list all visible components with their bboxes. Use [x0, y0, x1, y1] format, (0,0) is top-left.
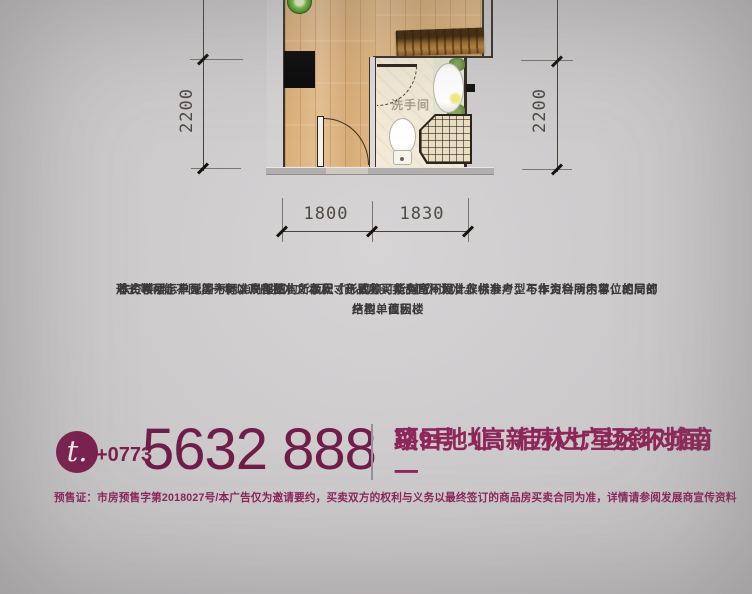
- dim-label-1830: 1830: [387, 204, 457, 224]
- dim-line-left: [203, 0, 204, 171]
- dim-witness: [190, 59, 243, 60]
- disclaimer-line: 形式等可能不同，一切以政府批准文本及《商品房买卖合同》为准。: [116, 280, 476, 300]
- legal-notice: 预售证：市房预售字第2018027号/本广告仅为邀请要约，买卖双方的权利与义务以…: [54, 490, 744, 505]
- dim-line-right: [557, 0, 558, 172]
- dim-witness: [522, 169, 572, 170]
- telephone-icon: t.: [56, 431, 98, 473]
- real-estate-flyer: 洗手间 2200 2200 1800 18: [0, 0, 752, 594]
- dim-line-bottom: [281, 231, 469, 232]
- dim-witness: [282, 198, 283, 242]
- dim-label-right: 2200: [530, 89, 550, 133]
- dim-label-left: 2200: [177, 89, 197, 133]
- dim-label-1800: 1800: [291, 204, 361, 224]
- dim-witness: [372, 201, 373, 242]
- vertical-divider: [371, 424, 373, 480]
- dim-witness: [191, 168, 241, 169]
- phone-number: 5632 888: [142, 419, 376, 481]
- address-line-2: 路9号（高新万达广场斜对面）: [394, 424, 724, 457]
- dim-witness: [468, 198, 469, 242]
- dim-witness: [521, 60, 573, 61]
